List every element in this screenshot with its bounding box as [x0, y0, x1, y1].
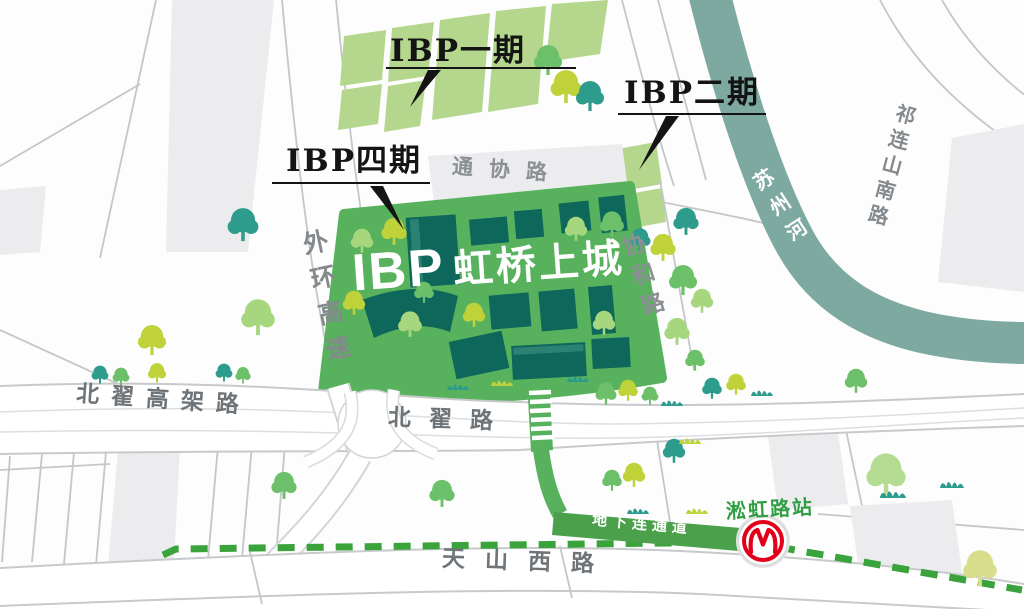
tree-icon	[241, 299, 275, 335]
grass-icon	[627, 509, 649, 515]
tianshan-west-road-label: 天山西路	[442, 547, 615, 576]
tree-icon	[216, 364, 233, 382]
phase2-callout-line	[618, 113, 766, 115]
tree-icon	[866, 453, 905, 495]
grass-icon	[686, 509, 708, 515]
tree-icon	[726, 374, 746, 395]
tree-icon	[642, 387, 659, 405]
tree-icon	[685, 350, 705, 371]
map-artwork	[0, 0, 1024, 609]
tree-icon	[148, 363, 166, 383]
tree-icon	[271, 472, 296, 499]
project-title-latin: IBP	[350, 238, 447, 302]
tree-icon	[673, 208, 698, 235]
phase2-pointer	[639, 116, 679, 170]
tree-icon	[845, 369, 867, 393]
phase4-callout-line	[272, 182, 430, 184]
metro-logo	[737, 515, 789, 567]
grass-icon	[940, 482, 964, 488]
location-map: IBP一期 IBP二期 IBP四期 IBP虹桥上城 通协路 协和路 外环高速 祁…	[0, 0, 1024, 609]
tree-icon	[650, 234, 675, 261]
tree-icon	[235, 367, 250, 384]
tree-icon	[623, 463, 645, 487]
phase1-callout-label: IBP一期	[390, 36, 526, 67]
tree-icon	[602, 470, 622, 491]
tree-icon	[138, 325, 166, 355]
beizhai-road-label: 北翟路	[388, 406, 512, 433]
tree-icon	[429, 480, 454, 507]
grass-icon	[751, 391, 773, 397]
phase1-callout-line	[386, 67, 576, 69]
phase2-callout-label: IBP二期	[624, 78, 760, 109]
tree-icon	[691, 289, 713, 313]
songhong-station-label: 淞虹路站	[726, 498, 815, 523]
tree-icon	[702, 378, 722, 399]
phase4-callout-label: IBP四期	[286, 146, 422, 177]
tree-icon	[669, 265, 697, 295]
grass-icon	[661, 401, 683, 407]
